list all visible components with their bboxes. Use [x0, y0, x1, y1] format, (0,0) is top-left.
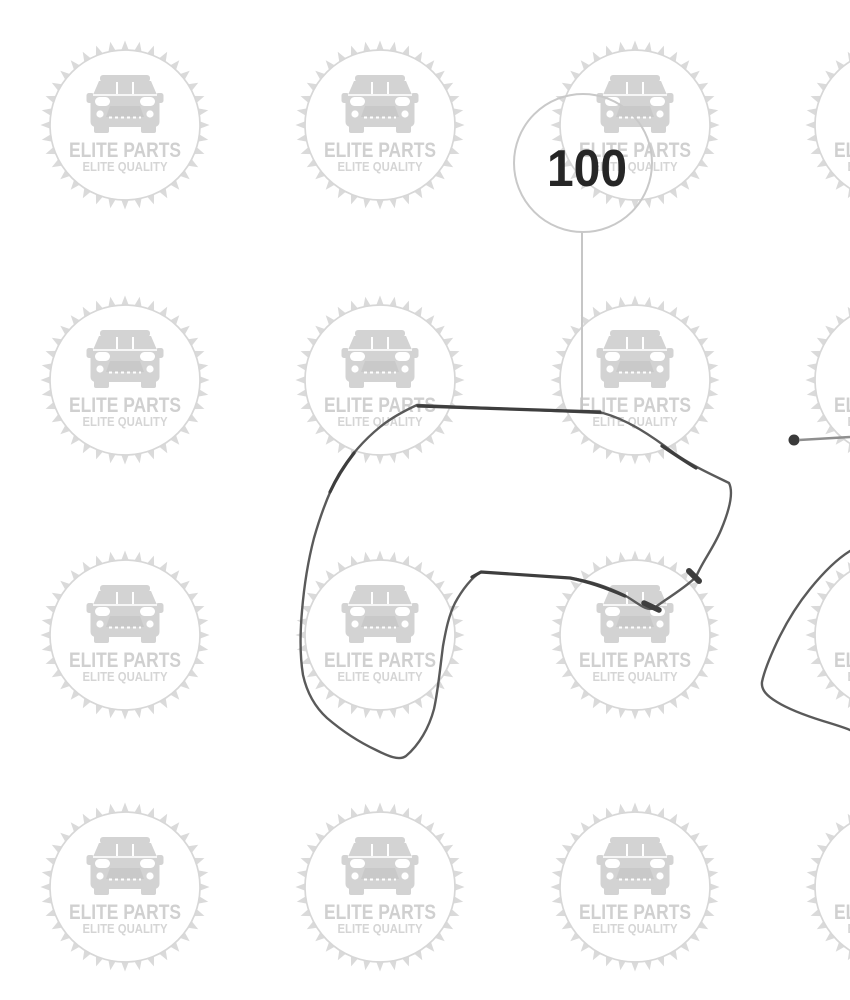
- callout-label: 100: [547, 140, 627, 198]
- hose-outline-shading-right: [662, 446, 696, 468]
- hose-outline-shading-top: [418, 406, 600, 412]
- hose-part-outline: [301, 405, 731, 758]
- parts-diagram-image: ELITE PARTS ELITE QUALITY: [0, 0, 850, 1000]
- adjacent-part-outline: [762, 551, 850, 730]
- fastener-leader-line: [799, 437, 850, 440]
- part-diagram: 100: [0, 0, 850, 1000]
- fastener-dot-icon: [789, 435, 800, 446]
- hose-outline-shading-inner: [472, 572, 625, 596]
- hose-outline-shading-left: [330, 453, 354, 492]
